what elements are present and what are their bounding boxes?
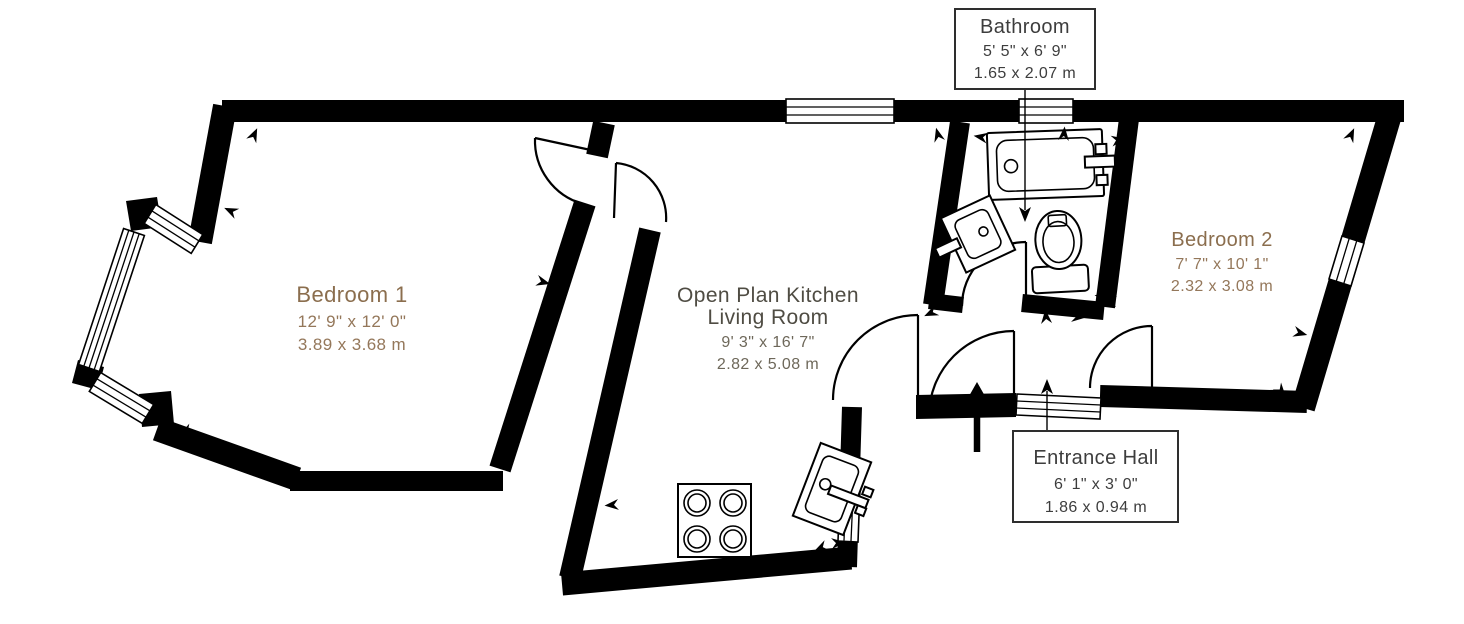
door-hall-to-living-icon xyxy=(833,315,918,400)
direction-arrow-icon xyxy=(1343,126,1359,143)
living-dims-imperial: 9' 3" x 16' 7" xyxy=(721,334,814,351)
front-door-threshold-icon xyxy=(1016,394,1101,419)
floorplan-drawing: Bedroom 1 12' 9" x 12' 0" 3.89 x 3.68 m … xyxy=(0,0,1464,624)
entrance-dims-imperial: 6' 1" x 3' 0" xyxy=(1054,476,1138,493)
living-name-line2: Living Room xyxy=(707,306,828,329)
bedroom2-dims-imperial: 7' 7" x 10' 1" xyxy=(1175,256,1268,273)
window-bedroom2-right-icon xyxy=(1329,236,1364,286)
kitchen-sink-icon xyxy=(793,443,883,539)
bedroom1-dims-imperial: 12' 9" x 12' 0" xyxy=(298,312,407,331)
bathtub-icon xyxy=(987,129,1116,200)
direction-arrow-icon xyxy=(246,126,262,143)
living-dims-metric: 2.82 x 5.08 m xyxy=(717,356,819,373)
wall-bottom xyxy=(562,558,851,584)
direction-arrow-icon xyxy=(604,499,619,511)
wall-living-left xyxy=(570,230,650,578)
wall-bedroom1-bottom-diagonal xyxy=(157,429,297,479)
hob-icon xyxy=(678,484,751,557)
bedroom2-name: Bedroom 2 xyxy=(1171,229,1272,251)
window-living-top-icon xyxy=(786,99,894,123)
door-living-icon xyxy=(614,163,666,222)
window-bay-left-icon xyxy=(79,229,145,372)
room-labels: Bedroom 1 12' 9" x 12' 0" 3.89 x 3.68 m … xyxy=(296,229,1273,373)
door-bedroom2-icon xyxy=(1090,326,1152,388)
window-bathroom-top-icon xyxy=(1019,99,1073,123)
living-name-line1: Open Plan Kitchen xyxy=(677,284,859,307)
direction-arrow-icon xyxy=(222,203,239,219)
floorplan-page: Bedroom 1 12' 9" x 12' 0" 3.89 x 3.68 m … xyxy=(0,0,1464,624)
toilet-icon xyxy=(1029,210,1089,294)
bathroom-dims-metric: 1.65 x 2.07 m xyxy=(974,65,1076,82)
bedroom1-dims-metric: 3.89 x 3.68 m xyxy=(298,335,406,354)
bedroom1-name: Bedroom 1 xyxy=(296,282,407,307)
wall-bathroom-bottom-left xyxy=(929,301,963,305)
entrance-dims-metric: 1.86 x 0.94 m xyxy=(1045,499,1147,516)
wall-bay-top xyxy=(200,106,225,242)
direction-arrow-icon xyxy=(931,126,945,142)
bathroom-dims-imperial: 5' 5" x 6' 9" xyxy=(983,43,1067,60)
wall-bathroom-bottom-right xyxy=(1022,303,1104,311)
wall-bottom-right xyxy=(1100,396,1307,402)
wall-bedroom1-right xyxy=(500,203,585,469)
direction-arrow-icon xyxy=(1292,326,1308,340)
window-bay-lower-icon xyxy=(89,373,153,424)
bathroom-name: Bathroom xyxy=(980,16,1070,38)
bedroom2-dims-metric: 2.32 x 3.08 m xyxy=(1171,278,1273,295)
entrance-name: Entrance Hall xyxy=(1033,447,1158,469)
